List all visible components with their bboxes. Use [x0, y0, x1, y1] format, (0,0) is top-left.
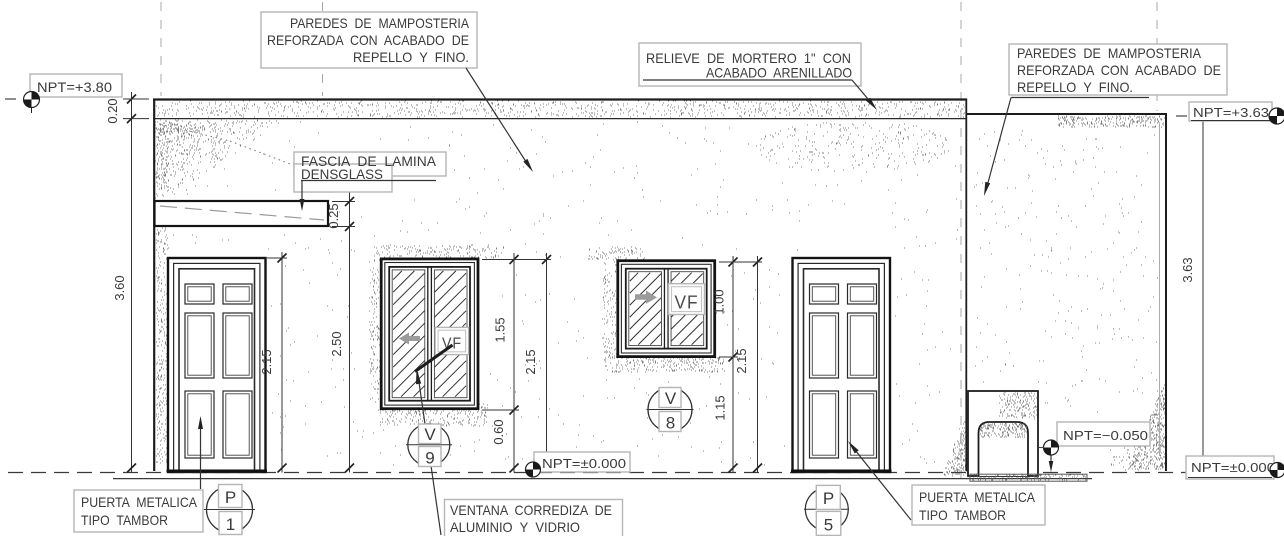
svg-text:REFORZADA CON ACABADO DE: REFORZADA CON ACABADO DE: [1017, 62, 1221, 78]
svg-text:ACABADO ARENILLADO: ACABADO ARENILLADO: [706, 65, 852, 81]
svg-text:2.15: 2.15: [523, 349, 538, 374]
svg-text:2.15: 2.15: [734, 348, 749, 373]
svg-text:VF: VF: [675, 292, 699, 313]
svg-text:NPT=−0.050: NPT=−0.050: [1063, 428, 1148, 443]
svg-text:3.60: 3.60: [112, 275, 127, 300]
svg-text:TIPO TAMBOR: TIPO TAMBOR: [81, 512, 168, 528]
svg-text:0.60: 0.60: [491, 419, 506, 444]
svg-text:P: P: [225, 488, 236, 507]
svg-text:PUERTA METALICA: PUERTA METALICA: [919, 489, 1036, 505]
svg-text:TIPO TAMBOR: TIPO TAMBOR: [919, 507, 1006, 523]
svg-text:REPELLO Y FINO.: REPELLO Y FINO.: [1017, 79, 1133, 95]
svg-text:NPT=±0.000: NPT=±0.000: [1191, 460, 1275, 475]
svg-text:NPT=+3.80: NPT=+3.80: [37, 80, 112, 95]
svg-text:3.63: 3.63: [1180, 257, 1195, 282]
svg-text:2.15: 2.15: [259, 349, 274, 374]
svg-text:1.55: 1.55: [493, 317, 508, 342]
svg-text:1.00: 1.00: [712, 289, 727, 314]
svg-text:VENTANA CORREDIZA DE: VENTANA CORREDIZA DE: [450, 502, 612, 518]
svg-text:8: 8: [666, 414, 675, 433]
svg-text:ALUMINIO Y VIDRIO: ALUMINIO Y VIDRIO: [450, 519, 580, 535]
svg-text:REFORZADA CON ACABADO DE: REFORZADA CON ACABADO DE: [267, 32, 469, 48]
svg-text:0.20: 0.20: [105, 98, 120, 123]
svg-text:NPT=+3.63: NPT=+3.63: [1193, 105, 1269, 120]
svg-text:0.25: 0.25: [326, 203, 341, 228]
svg-text:PUERTA METALICA: PUERTA METALICA: [81, 494, 198, 510]
svg-text:DENSGLASS: DENSGLASS: [301, 166, 383, 182]
svg-text:P: P: [823, 489, 834, 508]
svg-text:2.50: 2.50: [329, 331, 344, 356]
svg-text:PAREDES DE MAMPOSTERIA: PAREDES DE MAMPOSTERIA: [1017, 45, 1202, 61]
svg-text:1.15: 1.15: [713, 395, 728, 420]
svg-text:V: V: [424, 425, 436, 444]
svg-text:9: 9: [425, 449, 434, 468]
svg-text:NPT=±0.000: NPT=±0.000: [542, 456, 626, 471]
svg-text:REPELLO Y FINO.: REPELLO Y FINO.: [353, 49, 469, 65]
svg-text:1: 1: [226, 515, 235, 534]
svg-text:5: 5: [824, 516, 833, 535]
svg-text:V: V: [665, 389, 677, 408]
svg-text:PAREDES DE MAMPOSTERIA: PAREDES DE MAMPOSTERIA: [290, 15, 470, 31]
